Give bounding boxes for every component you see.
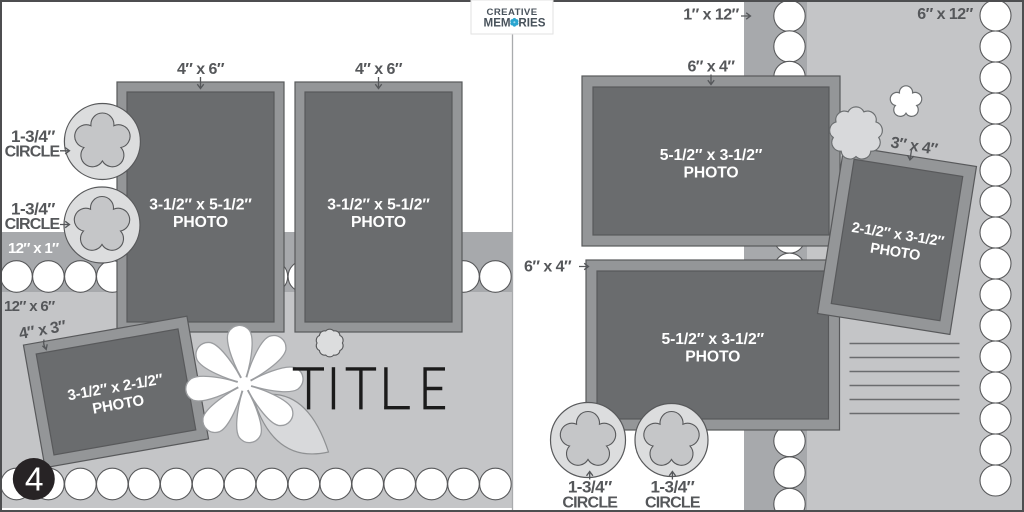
svg-text:3-1/2″ x 5-1/2″: 3-1/2″ x 5-1/2″ <box>327 197 430 214</box>
svg-text:12″ x 1″: 12″ x 1″ <box>8 240 59 257</box>
svg-text:6″ x 4″: 6″ x 4″ <box>687 59 735 76</box>
svg-text:MEM: MEM <box>484 17 511 30</box>
svg-text:CIRCLE: CIRCLE <box>5 216 61 233</box>
svg-text:PHOTO: PHOTO <box>685 349 740 366</box>
svg-text:CIRCLE: CIRCLE <box>562 495 618 512</box>
svg-text:1″ x 12″: 1″ x 12″ <box>683 7 739 24</box>
svg-text:5-1/2″ x 3-1/2″: 5-1/2″ x 3-1/2″ <box>660 147 763 164</box>
svg-text:1-3/4″: 1-3/4″ <box>568 477 612 496</box>
svg-text:PHOTO: PHOTO <box>351 214 406 231</box>
svg-text:CIRCLE: CIRCLE <box>645 495 701 512</box>
svg-text:5-1/2″ x 3-1/2″: 5-1/2″ x 3-1/2″ <box>662 331 765 348</box>
svg-text:6″ x 4″: 6″ x 4″ <box>524 259 572 276</box>
svg-text:4″ x 6″: 4″ x 6″ <box>355 61 403 78</box>
svg-text:12″ x 6″: 12″ x 6″ <box>4 298 55 315</box>
svg-text:PHOTO: PHOTO <box>684 165 739 182</box>
svg-text:RIES: RIES <box>518 17 545 30</box>
svg-text:3-1/2″ x 5-1/2″: 3-1/2″ x 5-1/2″ <box>149 197 252 214</box>
svg-text:4: 4 <box>25 462 44 499</box>
svg-text:4″ x 6″: 4″ x 6″ <box>177 61 225 78</box>
svg-text:PHOTO: PHOTO <box>173 214 228 231</box>
svg-text:6″ x 12″: 6″ x 12″ <box>917 6 973 23</box>
svg-text:1-3/4″: 1-3/4″ <box>650 477 694 496</box>
svg-text:CIRCLE: CIRCLE <box>5 144 61 161</box>
